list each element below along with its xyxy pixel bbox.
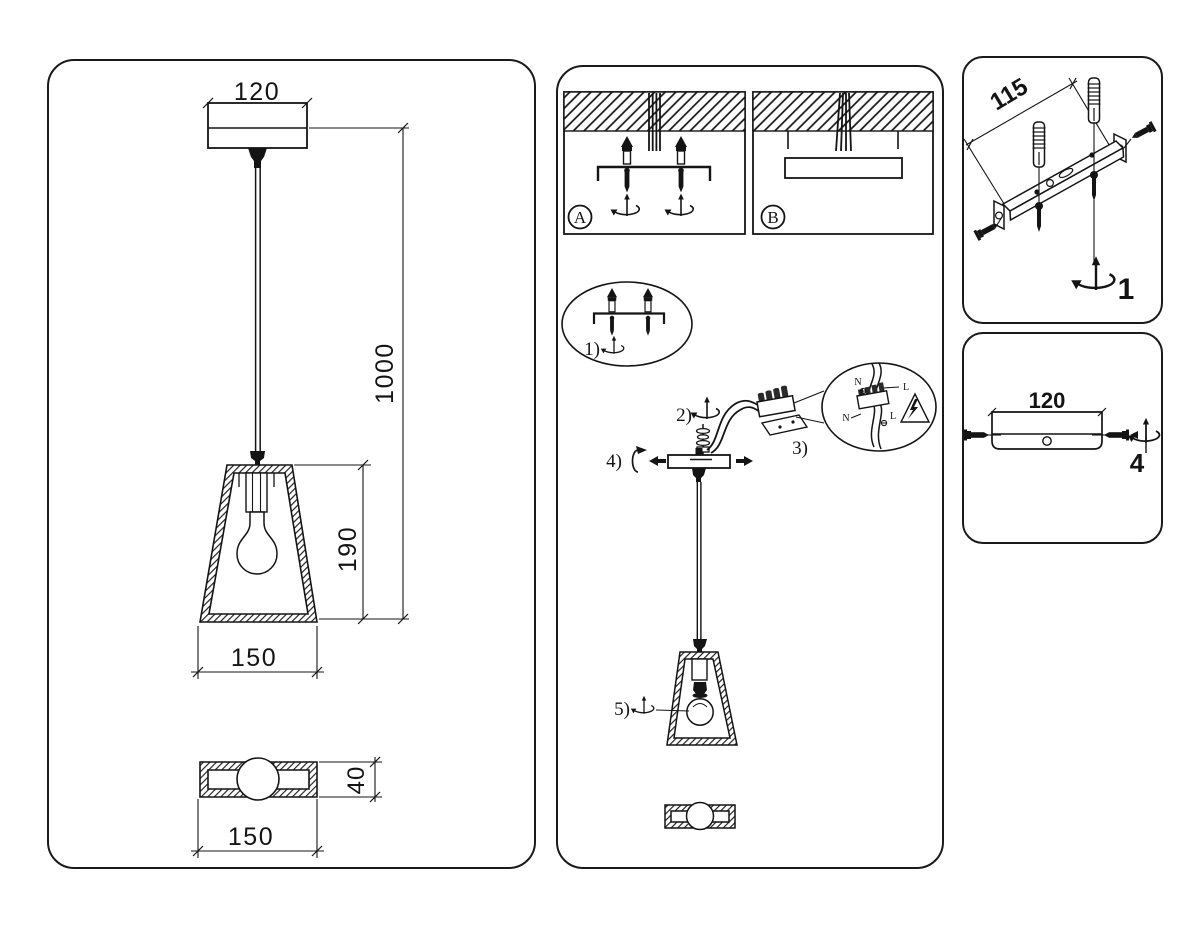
instruction-sheet: 120 1000 bbox=[0, 0, 1200, 933]
canopy-side-view bbox=[988, 408, 1106, 449]
lamp-socket bbox=[692, 659, 707, 680]
panel-bracket-step1: 115 1 bbox=[963, 57, 1162, 323]
step2-label: 2) bbox=[676, 405, 692, 426]
socket-opening bbox=[237, 758, 279, 800]
base-height-dim-label: 40 bbox=[343, 766, 370, 795]
step4-number: 4 bbox=[1130, 448, 1145, 478]
neutral-top-label: N bbox=[854, 377, 861, 388]
wall-plug-icon bbox=[1033, 122, 1046, 167]
bulb-cap bbox=[693, 682, 707, 694]
live-bottom-label: L bbox=[890, 411, 896, 422]
step3-label: 3) bbox=[792, 438, 808, 459]
mounting-option-b: B bbox=[753, 92, 933, 234]
canopy-hole bbox=[1043, 437, 1051, 445]
step1-label: 1) bbox=[584, 339, 600, 360]
step4-label: 4) bbox=[606, 451, 622, 472]
panel-border bbox=[48, 60, 535, 868]
ceiling-hatch bbox=[564, 92, 745, 131]
ceiling-plate bbox=[785, 158, 902, 178]
live-top-label: L bbox=[903, 382, 909, 393]
panel-canopy-step4: 120 4 bbox=[963, 333, 1162, 543]
canopy-width-dim-label: 120 bbox=[1029, 388, 1066, 413]
wiring-detail: N L N L bbox=[822, 363, 936, 451]
base-diameter-dim-label: 150 bbox=[228, 823, 274, 851]
neutral-bottom-label: N bbox=[842, 413, 849, 424]
shade-diameter-dim-label: 150 bbox=[231, 644, 277, 672]
drop-length-dim-label: 1000 bbox=[371, 342, 399, 404]
mounting-option-a: A bbox=[564, 92, 745, 234]
panel-installation: A B 1) 2) bbox=[557, 66, 943, 868]
canopy-width-dim-label: 120 bbox=[234, 78, 280, 106]
diagram-canvas: 120 1000 bbox=[0, 0, 1200, 933]
wall-plug-icon bbox=[1088, 78, 1101, 123]
bracket-hole bbox=[1047, 180, 1054, 187]
step5-label: 5) bbox=[614, 699, 630, 720]
canopy-bar bbox=[668, 455, 730, 468]
option-a-label: A bbox=[574, 208, 587, 227]
socket-opening bbox=[687, 803, 714, 830]
lamp-socket bbox=[246, 473, 267, 512]
bulb bbox=[687, 699, 713, 725]
step1-detail: 1) bbox=[562, 282, 692, 366]
option-b-label: B bbox=[767, 208, 778, 227]
step1-number: 1 bbox=[1118, 273, 1135, 306]
panel-dimensions: 120 1000 bbox=[48, 60, 535, 868]
shade-height-dim-label: 190 bbox=[334, 526, 362, 572]
